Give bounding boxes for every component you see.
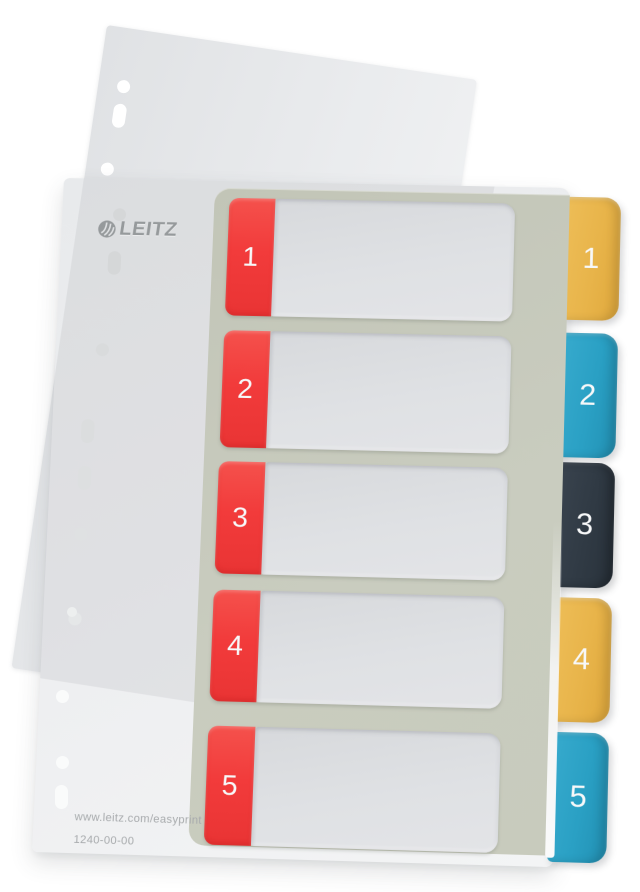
product-photo-stage: LEITZ 12345 12345 www.leitz.com/easyprin… bbox=[0, 0, 640, 892]
punch-hole bbox=[56, 756, 69, 769]
brand-text: LEITZ bbox=[118, 218, 179, 242]
row-number: 3 bbox=[232, 501, 249, 533]
website-url: www.leitz.com/easyprint bbox=[74, 811, 202, 827]
row-writing-field bbox=[256, 591, 504, 709]
tab-number: 1 bbox=[582, 242, 600, 276]
punch-hole bbox=[55, 785, 68, 809]
row-number-label: 4 bbox=[209, 590, 260, 703]
row-number-label: 5 bbox=[204, 726, 256, 846]
index-row: 2 bbox=[220, 330, 512, 454]
tab-number: 3 bbox=[576, 508, 594, 543]
row-number: 4 bbox=[226, 629, 243, 662]
index-tab-1: 1 bbox=[561, 197, 622, 321]
punch-hole bbox=[111, 103, 127, 129]
row-number-label: 1 bbox=[225, 198, 276, 317]
index-divider-sheet: LEITZ 12345 12345 www.leitz.com/easyprin… bbox=[32, 178, 570, 867]
row-writing-field bbox=[261, 462, 508, 581]
row-number-label: 3 bbox=[215, 461, 266, 574]
row-number: 2 bbox=[237, 373, 254, 405]
punch-hole bbox=[81, 419, 95, 443]
tab-number: 4 bbox=[572, 642, 590, 677]
index-row: 3 bbox=[215, 461, 508, 581]
punch-hole bbox=[100, 162, 115, 177]
leitz-logo: LEITZ bbox=[97, 218, 178, 242]
punch-hole bbox=[116, 79, 131, 94]
row-writing-field bbox=[251, 727, 501, 853]
row-writing-field bbox=[266, 331, 512, 454]
tab-number: 2 bbox=[579, 378, 597, 412]
index-tab-2: 2 bbox=[557, 333, 618, 459]
punch-hole bbox=[77, 466, 91, 490]
punch-hole bbox=[56, 690, 69, 703]
row-number-label: 2 bbox=[220, 330, 271, 448]
leitz-swirl-icon bbox=[97, 220, 117, 239]
row-number: 1 bbox=[242, 241, 259, 273]
tab-number: 5 bbox=[569, 780, 587, 816]
index-row: 4 bbox=[209, 590, 504, 709]
punch-hole bbox=[67, 607, 77, 617]
punch-hole bbox=[107, 251, 121, 275]
row-number: 5 bbox=[221, 769, 238, 802]
index-tab-3: 3 bbox=[554, 462, 615, 588]
row-writing-field bbox=[271, 199, 515, 322]
index-row: 1 bbox=[225, 198, 515, 322]
article-number: 1240-00-00 bbox=[73, 834, 134, 848]
index-row: 5 bbox=[204, 726, 501, 854]
